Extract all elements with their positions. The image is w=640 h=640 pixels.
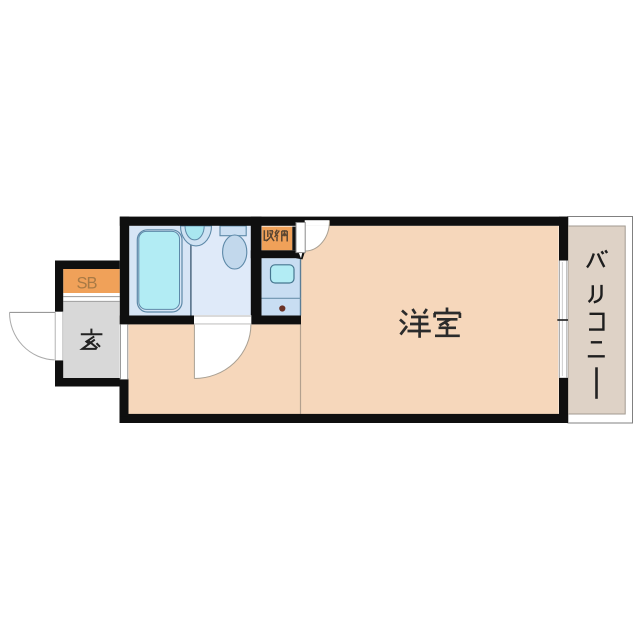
svg-text:SB: SB — [76, 274, 97, 292]
